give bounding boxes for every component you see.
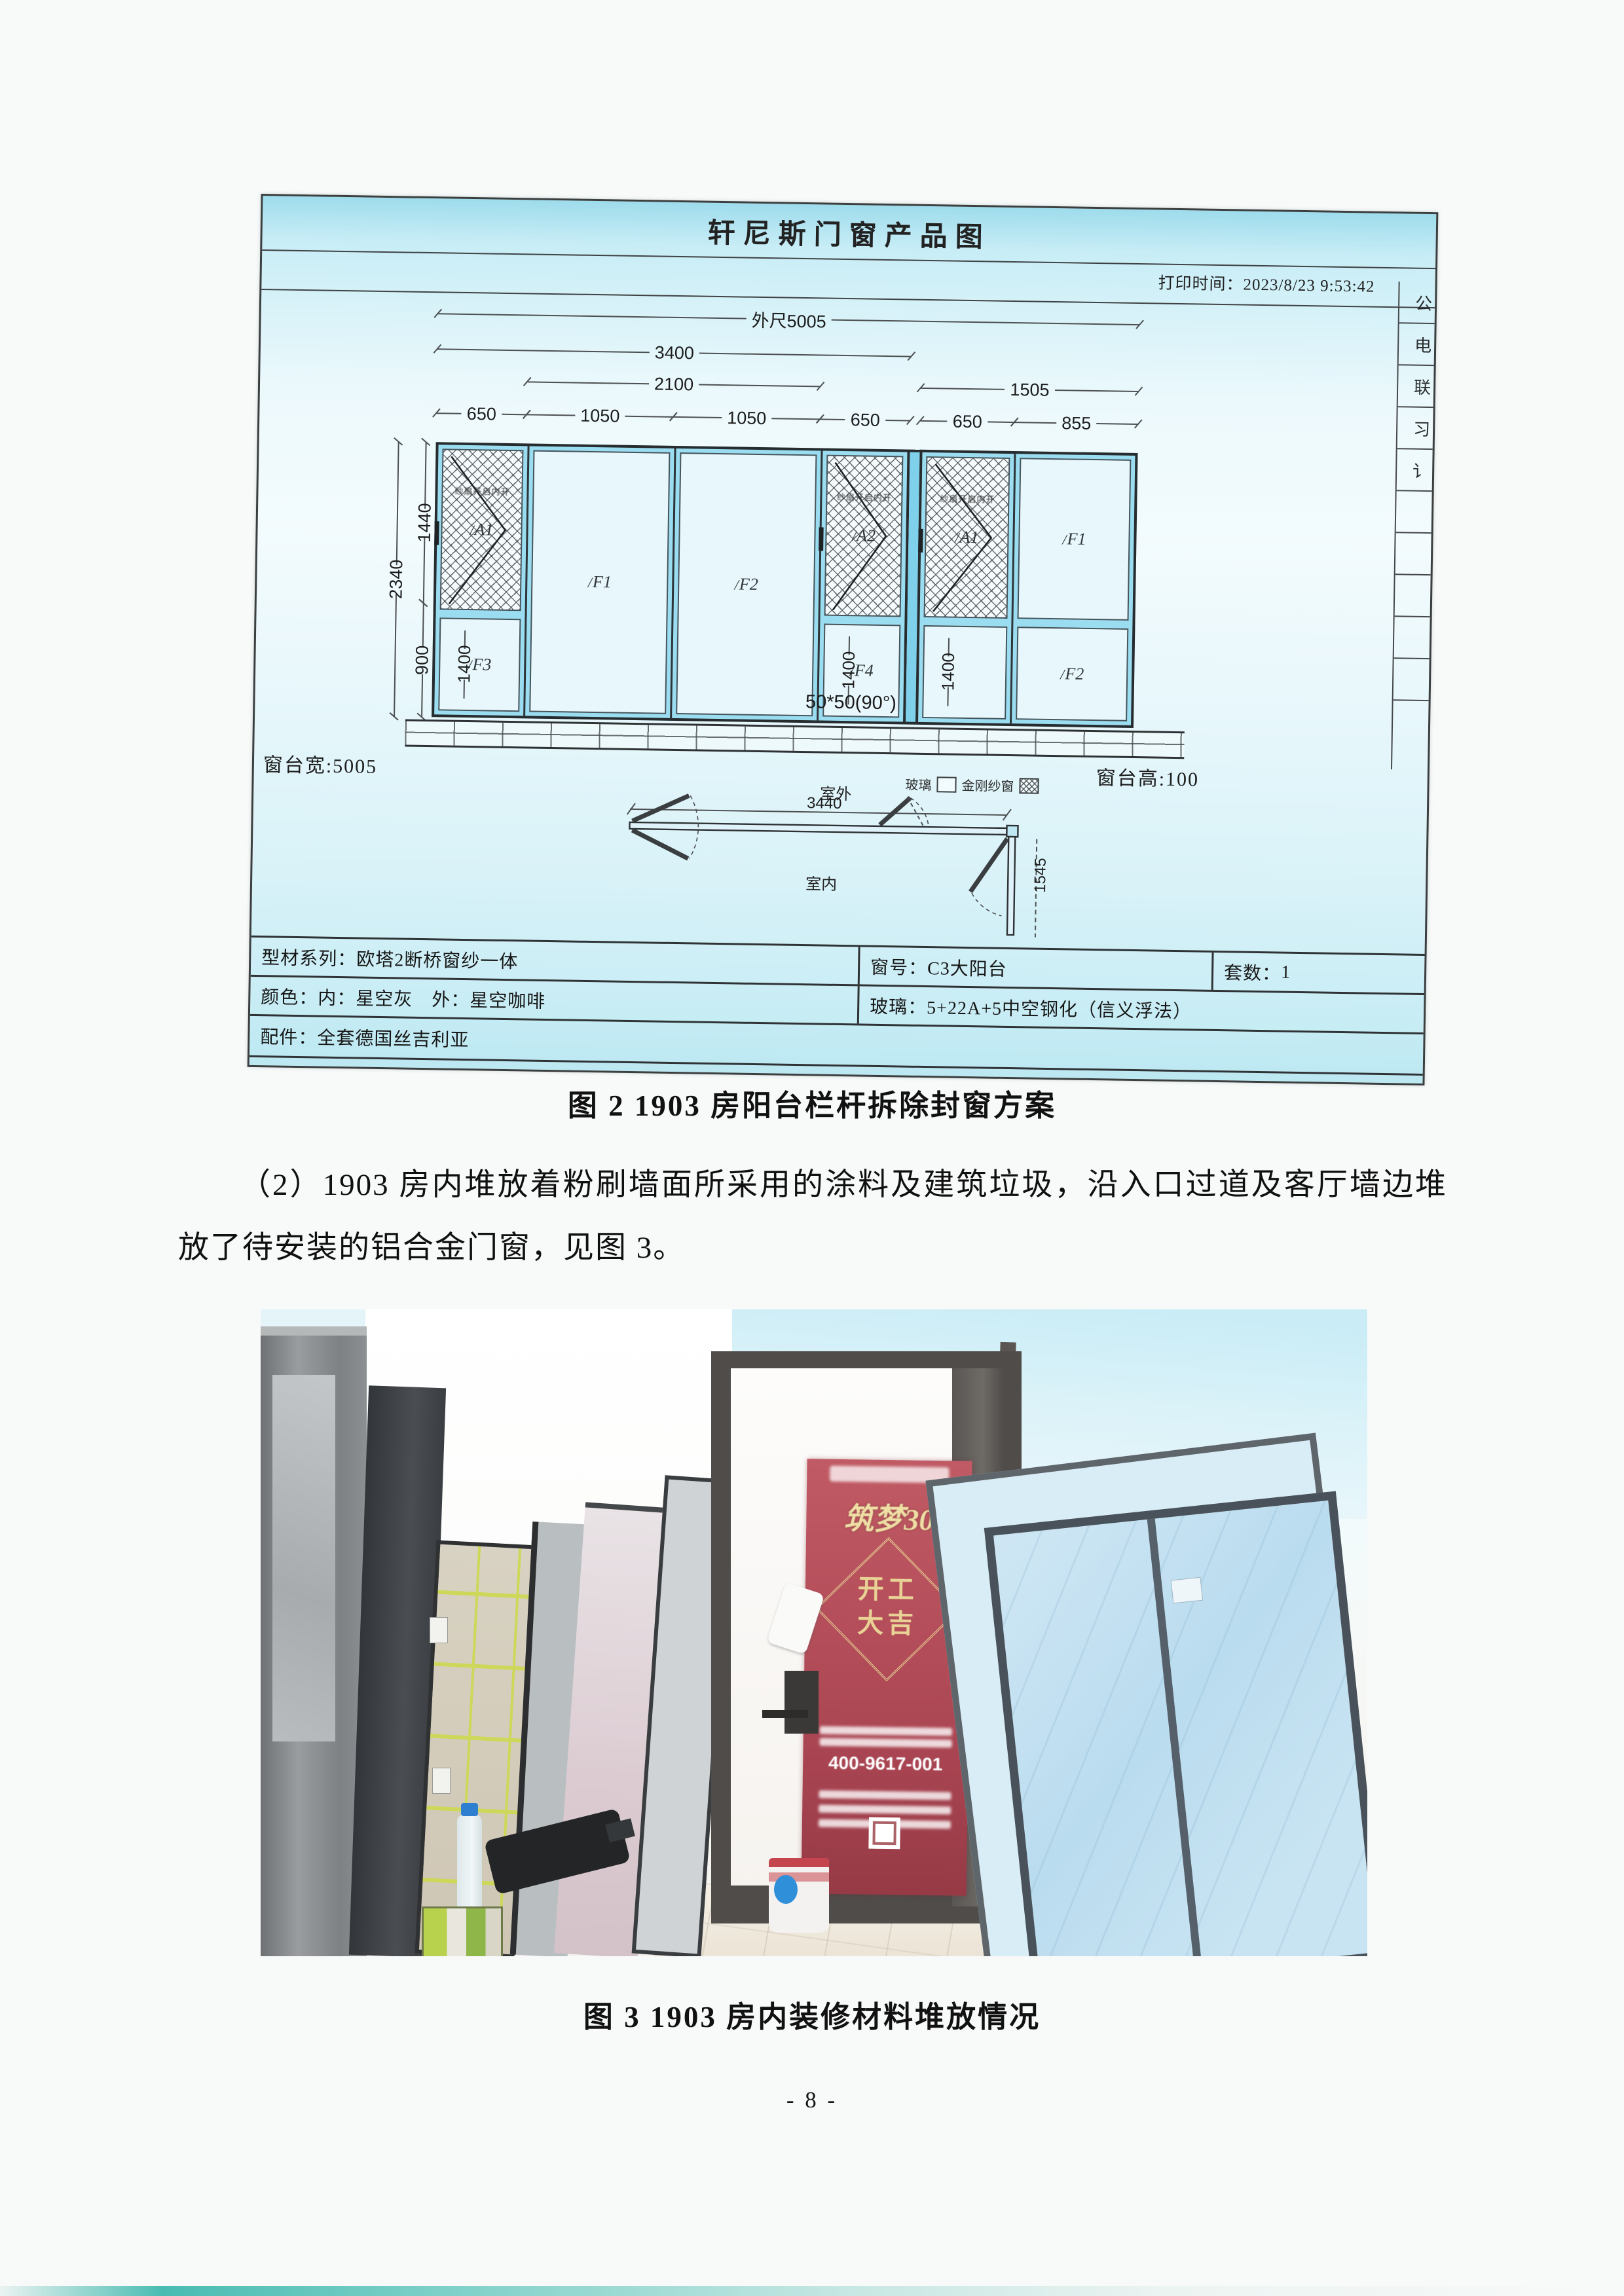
fixed-panel-f2-right: F2	[1016, 627, 1128, 721]
poster-text-bar	[820, 1738, 952, 1748]
color-label: 颜色：	[261, 983, 318, 1010]
window-no-cell: 窗号： C3大阳台	[860, 947, 1214, 989]
mesh-open-note: 纱扇开启内开	[827, 490, 901, 504]
panel-label-f2: F2	[735, 574, 758, 594]
column-mesh-mid: 纱扇开启内开 A2 1400 F4	[817, 450, 907, 721]
panel-label-f1: F1	[588, 572, 612, 592]
dim-seg-1: 650	[436, 403, 526, 425]
film-sticker	[1171, 1577, 1204, 1604]
dim-mid-pair: 2100	[527, 371, 821, 397]
plan-width-dim: 3440	[807, 794, 842, 812]
wardrobe-mirror	[272, 1375, 335, 1741]
leaning-window-front	[984, 1491, 1367, 1956]
window-product-drawing-sheet: 轩尼斯门窗产品图 打印时间：2023/8/23 9:53:42 公 电 联 习 …	[248, 194, 1439, 1085]
mesh-open-note: 纱扇开启内开	[443, 484, 521, 498]
parts-value: 全套德国丝吉利亚	[317, 1023, 470, 1052]
side-label: 联	[1414, 374, 1431, 398]
panel-label-f1: F1	[1062, 529, 1086, 549]
print-time-label: 打印时间：2023/8/23 9:53:42	[1158, 270, 1375, 297]
sets-label: 套数：	[1224, 958, 1282, 985]
side-cell	[1393, 659, 1430, 701]
side-cell	[1395, 533, 1431, 575]
sets-value: 1	[1281, 962, 1291, 983]
fixed-panel-f3: 1400 F3	[438, 617, 521, 712]
fixed-panel-f2: F2	[676, 452, 817, 716]
figure2-caption: 图 2 1903 房阳台栏杆拆除封窗方案	[0, 1082, 1624, 1124]
door-handle	[784, 1671, 819, 1734]
title-block-side-column: 公 电 联 习 讠	[1391, 282, 1435, 770]
column-mesh-right: 纱扇开启内开 A1 1400	[918, 452, 1014, 723]
paint-material-boxes	[422, 1906, 503, 1956]
spec-table: 型材系列： 欧塔2断桥窗纱一体 窗号： C3大阳台 套数： 1 颜色： 内：星空…	[249, 936, 1425, 1076]
casement-swing-lines	[925, 458, 1009, 617]
side-cell	[1395, 575, 1431, 617]
poster-text-bar	[819, 1805, 951, 1815]
sill-height-label: 窗台高:100	[1096, 761, 1199, 792]
color-value: 内：星空灰 外：星空咖啡	[318, 983, 546, 1013]
dim-seg-2: 1050	[526, 404, 673, 428]
side-cell	[1396, 491, 1432, 534]
sash-handle-icon	[918, 529, 923, 553]
dim-bottom-height: 900	[411, 603, 435, 718]
column-mesh-left: 纱扇开启内开 A1 1400 F3	[434, 445, 527, 716]
casement-swing-lines	[441, 450, 523, 610]
mesh-sash-a1-right: 纱扇开启内开 A1	[924, 456, 1010, 619]
dim-sash-1400: 1400	[445, 630, 484, 699]
side-cell	[1394, 617, 1430, 659]
poster-text-bar	[820, 1726, 952, 1736]
side-label: 习	[1413, 416, 1431, 440]
sill-width-label: 窗台宽:5005	[263, 748, 378, 779]
paint-bucket	[769, 1858, 829, 1933]
fixed-panel-f1-right: F1	[1018, 458, 1132, 621]
dim-total-height: 2340	[383, 441, 410, 716]
bundle-label-tag	[432, 1768, 451, 1794]
poster-text-bar	[819, 1791, 951, 1800]
side-label: 电	[1414, 332, 1432, 356]
sash-handle-icon	[434, 521, 439, 545]
window-plan-view: 室外 3440 1545 室内	[608, 781, 1069, 948]
fixed-panel-f1: F1	[529, 450, 670, 714]
scan-edge-artifact	[0, 2286, 1624, 2296]
column-fixed-right: F1 F2	[1010, 454, 1135, 725]
bucket-stripe	[769, 1858, 829, 1867]
side-label: 讠	[1412, 458, 1430, 482]
figure3-caption: 图 3 1903 房内装修材料堆放情况	[0, 1993, 1624, 2035]
profile-series-label: 型材系列：	[261, 943, 357, 971]
side-cell: 公	[1399, 282, 1435, 324]
dim-right-group: 1505	[921, 378, 1139, 402]
window-elevation: 纱扇开启内开 A1 1400 F3 F1 F2	[432, 442, 1137, 728]
profile-series-value: 欧塔2断桥窗纱一体	[356, 945, 519, 974]
column-fixed-f2: F2	[670, 448, 821, 720]
elevation-right-group: 纱扇开启内开 A1 1400 F1 F2	[915, 450, 1138, 728]
corner-post-note: 50*50(90°)	[752, 691, 949, 716]
dim-outer-width: 外尺5005	[437, 303, 1139, 335]
window-no-value: C3大阳台	[927, 954, 1007, 981]
mesh-sash-a2: 纱扇开启内开 A2	[824, 455, 904, 617]
parts-label: 配件：	[260, 1023, 318, 1049]
sets-cell: 套数： 1	[1213, 953, 1425, 993]
glass-label: 玻璃：	[870, 992, 927, 1019]
glass-value: 5+22A+5中空钢化（信义浮法）	[927, 993, 1192, 1023]
window-no-label: 窗号：	[870, 953, 928, 979]
plan-leg-dim: 1545	[1031, 858, 1050, 893]
casement-swing-lines	[826, 456, 902, 616]
dim-seg-5: 650	[920, 410, 1014, 433]
site-photo: 筑梦30 开工 大吉 400-9617-001	[261, 1309, 1367, 1956]
glass-cell: 玻璃： 5+22A+5中空钢化（信义浮法）	[859, 986, 1424, 1032]
dim-seg-3: 1050	[673, 407, 820, 430]
wardrobe-panel	[261, 1326, 367, 1956]
mesh-sash-a1: 纱扇开启内开 A1	[440, 448, 524, 611]
bucket-blue-paint	[774, 1875, 798, 1904]
column-fixed-f1: F1	[523, 446, 674, 718]
page-number: - 8 -	[0, 2087, 1624, 2113]
bundle-label-tag	[430, 1617, 448, 1643]
dim-seg-4: 650	[820, 409, 910, 431]
profile-series-cell: 型材系列： 欧塔2断桥窗纱一体	[251, 938, 860, 985]
dim-seg-6: 855	[1014, 412, 1138, 435]
side-cell: 联	[1398, 365, 1434, 408]
report-page: 轩尼斯门窗产品图 打印时间：2023/8/23 9:53:42 公 电 联 习 …	[0, 0, 1624, 2296]
plan-inside-label: 室内	[805, 875, 837, 894]
dim-left-group: 3400	[437, 338, 912, 367]
mesh-open-note: 纱扇开启内开	[927, 492, 1008, 505]
elevation-left-group: 纱扇开启内开 A1 1400 F3 F1 F2	[432, 442, 910, 724]
side-label: 公	[1415, 290, 1433, 314]
body-paragraph: （2）1903 房内堆放着粉刷墙面所采用的涂料及建筑垃圾，沿入口过道及客厅墙边堆…	[178, 1154, 1447, 1280]
side-cell: 习	[1397, 407, 1433, 450]
side-cell: 讠	[1397, 449, 1433, 492]
poster-phone: 400-9617-001	[803, 1752, 968, 1776]
panel-label-f2: F2	[1060, 664, 1084, 684]
poster-qr-code	[868, 1817, 900, 1850]
side-cell: 电	[1399, 323, 1435, 366]
sash-handle-icon	[819, 527, 824, 551]
